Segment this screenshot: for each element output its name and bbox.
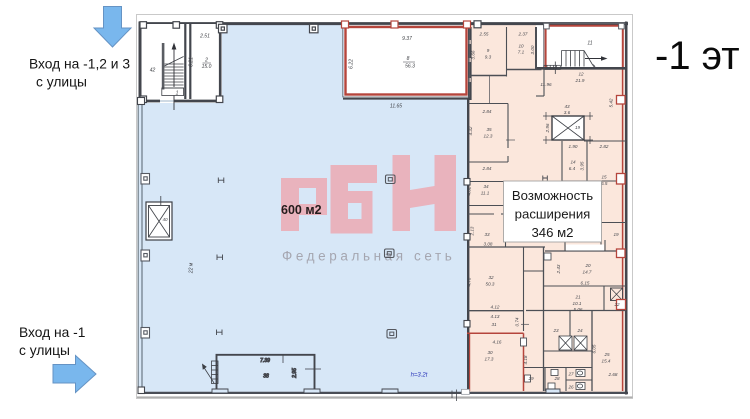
- svg-text:с улицы: с улицы: [19, 343, 70, 358]
- svg-text:11.1: 11.1: [481, 191, 490, 196]
- svg-text:9.3: 9.3: [485, 55, 492, 60]
- svg-text:2.68: 2.68: [608, 372, 618, 377]
- svg-text:30: 30: [487, 350, 493, 355]
- svg-text:40: 40: [162, 217, 168, 222]
- svg-text:20: 20: [584, 263, 591, 268]
- svg-text:23: 23: [552, 328, 559, 333]
- svg-text:33: 33: [484, 232, 490, 237]
- svg-text:600 м2: 600 м2: [281, 203, 322, 217]
- svg-text:2.37: 2.37: [518, 32, 528, 37]
- svg-text:29: 29: [527, 376, 534, 381]
- svg-text:15.4: 15.4: [602, 359, 611, 364]
- svg-text:2.55: 2.55: [479, 32, 489, 37]
- svg-text:35: 35: [486, 127, 492, 132]
- svg-text:-1 эт: -1 эт: [655, 34, 740, 78]
- svg-text:1.90: 1.90: [569, 144, 578, 149]
- svg-text:7.39: 7.39: [260, 358, 270, 364]
- svg-text:с улицы: с улицы: [36, 75, 87, 90]
- svg-text:14.7: 14.7: [583, 270, 592, 275]
- svg-text:27: 27: [567, 372, 574, 377]
- svg-text:Вход на -1,2 и 3: Вход на -1,2 и 3: [29, 57, 130, 72]
- svg-text:11: 11: [587, 41, 592, 47]
- svg-text:6.15: 6.15: [581, 281, 590, 286]
- svg-text:19: 19: [613, 232, 619, 237]
- svg-text:3.6: 3.6: [564, 110, 571, 115]
- svg-text:5.06: 5.06: [574, 307, 583, 312]
- svg-text:11.96: 11.96: [540, 82, 552, 87]
- svg-text:4.16: 4.16: [493, 340, 502, 345]
- svg-text:32: 32: [488, 275, 494, 280]
- svg-text:5.42: 5.42: [609, 98, 614, 107]
- svg-text:10.1: 10.1: [573, 301, 582, 306]
- svg-text:10: 10: [518, 44, 524, 49]
- svg-text:1: 1: [176, 91, 179, 97]
- svg-text:8: 8: [407, 56, 410, 62]
- svg-text:3.95: 3.95: [580, 161, 585, 170]
- svg-text:17.3: 17.3: [485, 357, 494, 362]
- svg-text:6.21: 6.21: [189, 57, 195, 67]
- svg-text:15.0: 15.0: [202, 64, 212, 70]
- svg-text:21.9: 21.9: [575, 78, 585, 83]
- svg-text:4.12: 4.12: [491, 305, 500, 310]
- svg-text:22 м: 22 м: [189, 262, 195, 274]
- svg-text:15: 15: [601, 175, 607, 180]
- svg-text:3.66: 3.66: [471, 50, 476, 59]
- svg-text:4.73: 4.73: [467, 277, 472, 286]
- svg-text:2.82: 2.82: [599, 144, 609, 149]
- svg-text:34: 34: [483, 184, 489, 189]
- svg-text:19: 19: [575, 125, 581, 130]
- svg-text:4.02: 4.02: [467, 186, 472, 195]
- svg-text:2.51: 2.51: [199, 34, 210, 40]
- svg-text:2.95: 2.95: [292, 368, 298, 379]
- svg-text:4.13: 4.13: [491, 314, 500, 319]
- svg-text:21: 21: [574, 295, 581, 300]
- svg-text:9: 9: [487, 48, 490, 53]
- svg-text:2.84: 2.84: [482, 109, 492, 114]
- svg-text:h=3.2t: h=3.2t: [411, 373, 428, 379]
- svg-text:12.3: 12.3: [484, 134, 493, 139]
- svg-text:2.43: 2.43: [556, 264, 561, 274]
- svg-text:11.65: 11.65: [390, 104, 402, 110]
- svg-text:6.22: 6.22: [349, 59, 355, 69]
- svg-text:14: 14: [570, 160, 576, 165]
- svg-text:6.05: 6.05: [592, 344, 597, 353]
- svg-text:расширения: расширения: [515, 207, 591, 222]
- svg-text:Федеральная сеть: Федеральная сеть: [282, 249, 455, 264]
- svg-text:3.00: 3.00: [530, 45, 535, 54]
- svg-text:38: 38: [263, 374, 269, 380]
- svg-text:31: 31: [491, 322, 497, 327]
- svg-text:50.3: 50.3: [486, 282, 495, 287]
- svg-text:56.3: 56.3: [405, 64, 415, 70]
- svg-text:2: 2: [204, 58, 208, 64]
- svg-text:7.1: 7.1: [518, 50, 525, 55]
- svg-text:12: 12: [578, 72, 584, 77]
- svg-text:28: 28: [553, 376, 560, 381]
- svg-text:4.18: 4.18: [523, 355, 528, 364]
- svg-text:25: 25: [603, 352, 610, 357]
- svg-text:43: 43: [564, 104, 570, 109]
- svg-text:0.74: 0.74: [515, 317, 520, 326]
- svg-text:6.4: 6.4: [569, 166, 576, 171]
- svg-text:2.84: 2.84: [482, 166, 492, 171]
- svg-text:42: 42: [150, 68, 156, 74]
- svg-text:26: 26: [567, 385, 574, 390]
- svg-text:4.32: 4.32: [468, 126, 473, 135]
- svg-text:2.96: 2.96: [545, 123, 550, 133]
- svg-text:9.37: 9.37: [402, 36, 412, 42]
- svg-text:24: 24: [576, 328, 583, 333]
- svg-text:22: 22: [613, 302, 620, 307]
- svg-text:346 м2: 346 м2: [531, 225, 573, 240]
- svg-text:Вход на -1: Вход на -1: [19, 325, 85, 340]
- svg-text:3.08: 3.08: [484, 242, 493, 247]
- svg-text:Возможность: Возможность: [512, 188, 593, 203]
